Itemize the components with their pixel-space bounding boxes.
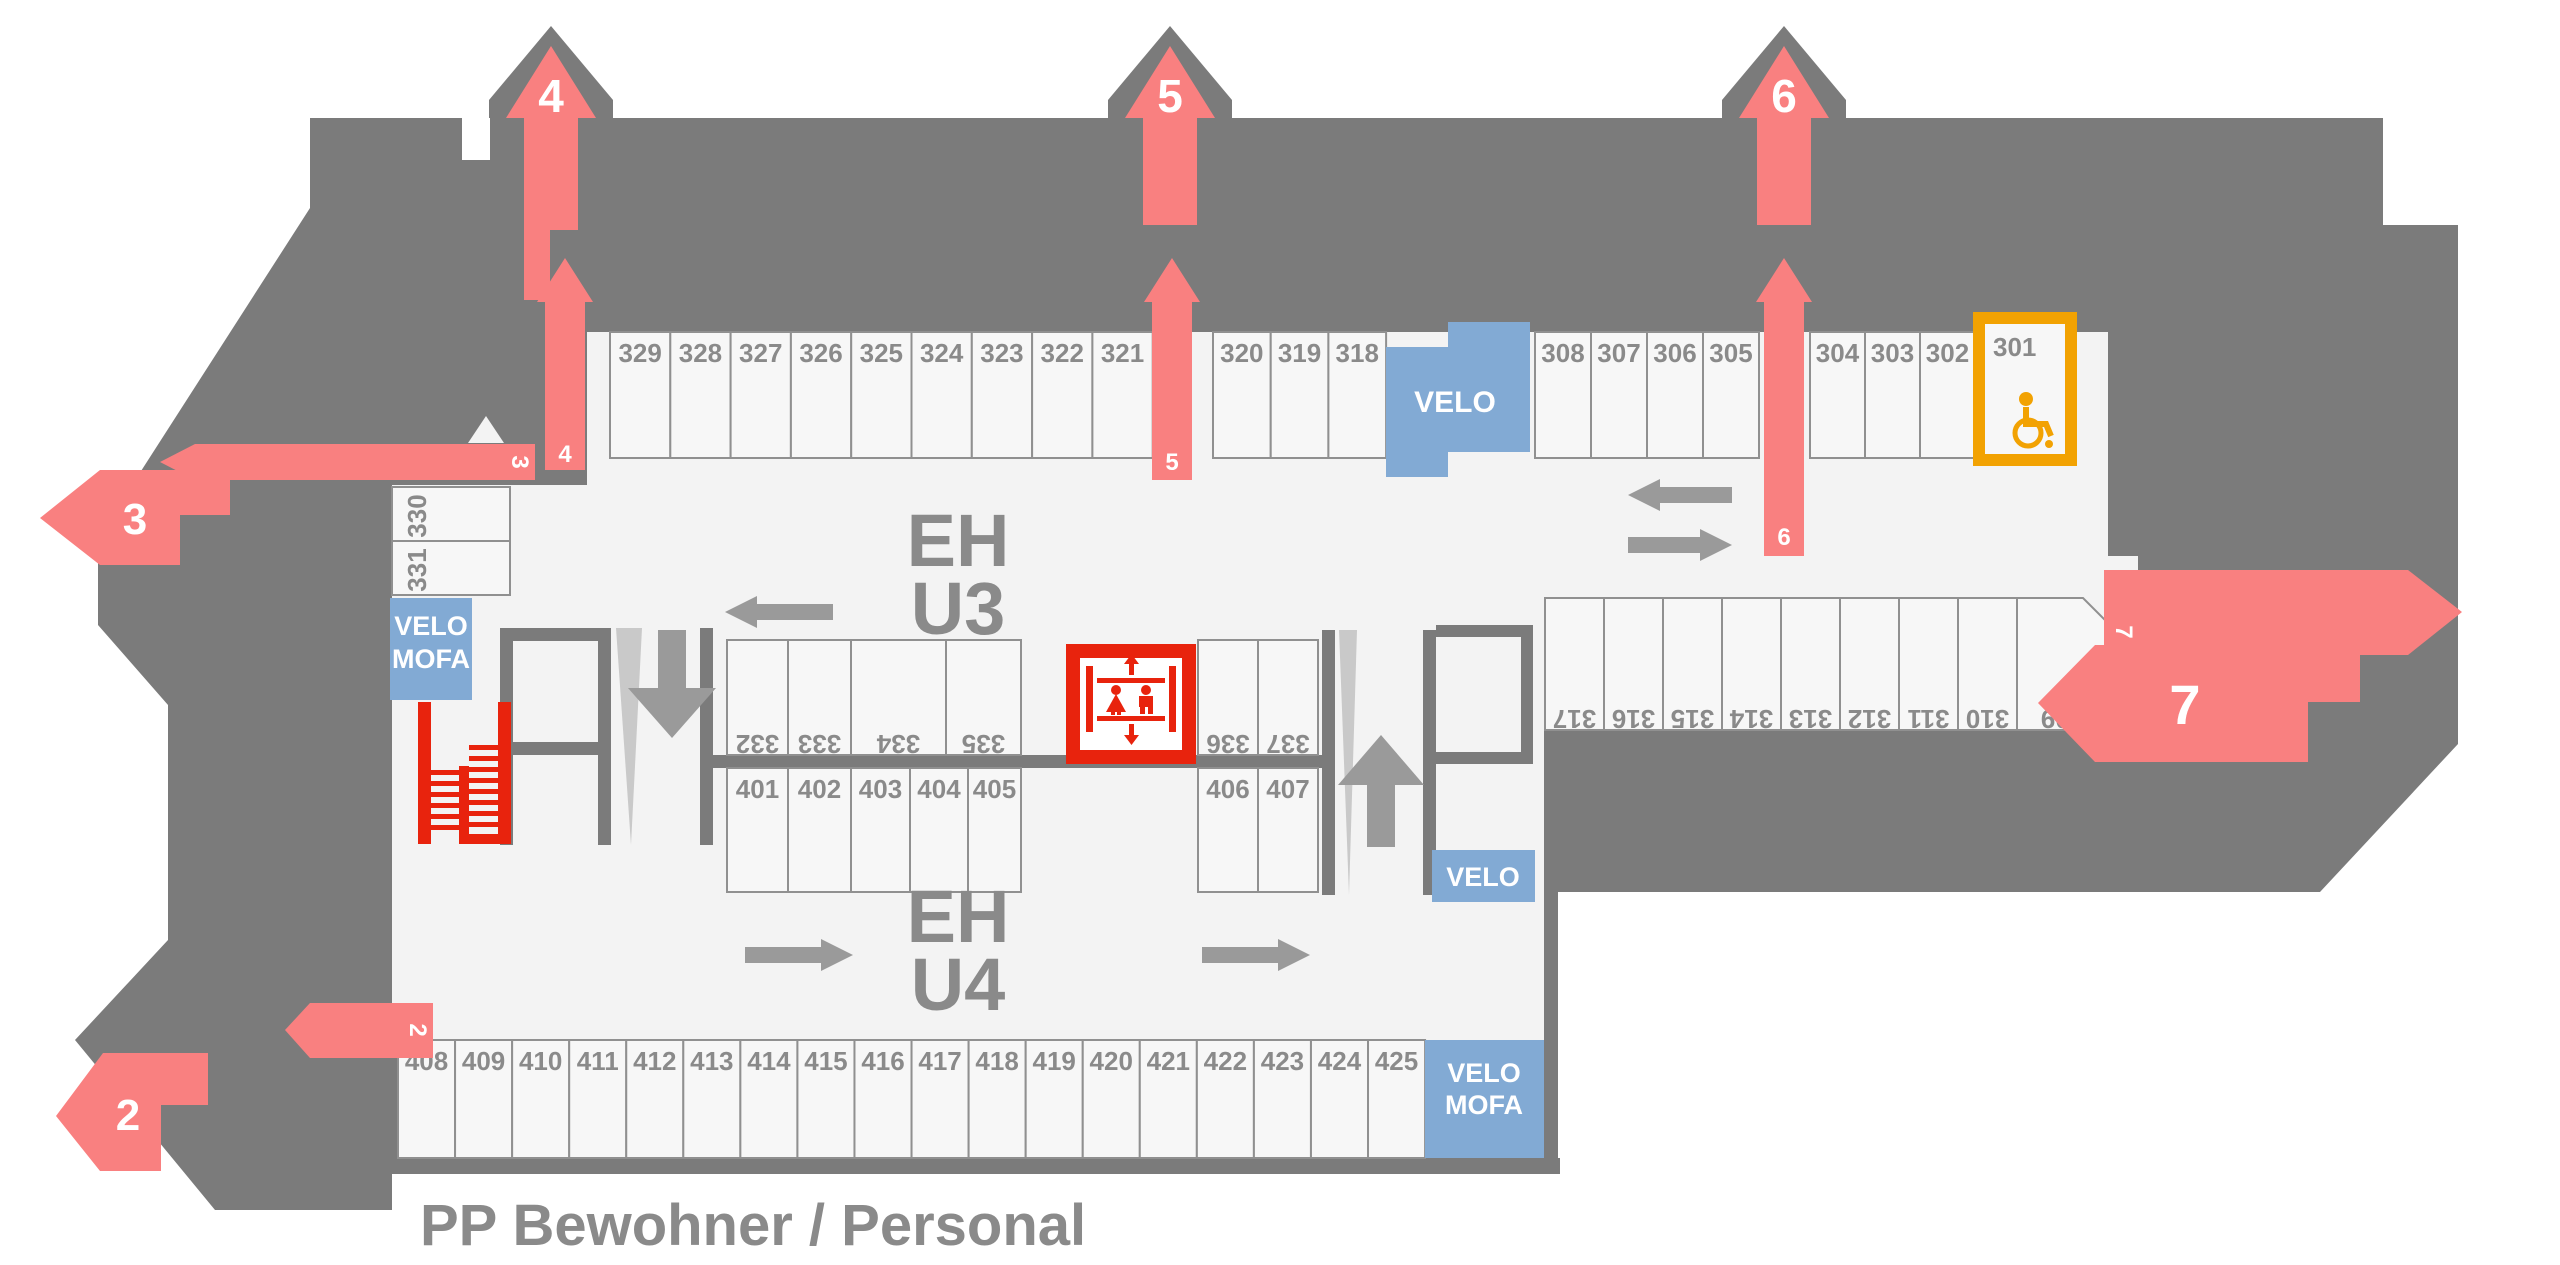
velo-mofa-left-line2: MOFA <box>392 644 470 674</box>
entrance-6-label: 6 <box>1771 70 1797 122</box>
parking-spot-412: 412 <box>626 1040 683 1158</box>
parking-spot-411: 411 <box>569 1040 626 1158</box>
parking-spot-330: 330 <box>392 487 510 541</box>
parking-spot-321: 321 <box>1092 332 1152 458</box>
entrance-5-label: 5 <box>1157 70 1183 122</box>
parking-spot-label: 325 <box>860 338 903 368</box>
parking-spot-label: 415 <box>804 1046 847 1076</box>
parking-spot-406: 406 <box>1198 768 1258 892</box>
parking-spot-label: 425 <box>1375 1046 1418 1076</box>
parking-spot-label: 405 <box>973 774 1016 804</box>
parking-spot-label: 311 <box>1908 704 1950 734</box>
parking-spot-418: 418 <box>969 1040 1026 1158</box>
entrance-2-big-label: 2 <box>116 1091 140 1140</box>
velo-mofa-bottom-line1: VELO <box>1447 1058 1521 1088</box>
elevator-icon <box>1073 651 1189 757</box>
parking-spot-307: 307 <box>1591 332 1647 458</box>
parking-spot-329: 329 <box>610 332 670 458</box>
parking-spot-318: 318 <box>1328 332 1386 458</box>
parking-spot-label: 312 <box>1848 704 1891 734</box>
parking-spot-label: 334 <box>876 729 920 759</box>
parking-spot-label: 318 <box>1336 338 1379 368</box>
parking-spot-label: 403 <box>859 774 902 804</box>
entrance-3-big-label: 3 <box>123 495 147 544</box>
velo-mofa-left-line1: VELO <box>394 611 468 641</box>
parking-spot-414: 414 <box>740 1040 797 1158</box>
parking-spot-401: 401 <box>727 768 788 892</box>
parking-spot-label: 401 <box>736 774 779 804</box>
page-title: PP Bewohner / Personal <box>420 1193 1086 1258</box>
entrance-7-big-label: 7 <box>2169 673 2200 736</box>
parking-spot-label: 412 <box>633 1046 676 1076</box>
entrance-3-small-label: 3 <box>506 455 533 468</box>
parking-spot-327: 327 <box>731 332 791 458</box>
parking-spot-label: 307 <box>1597 338 1640 368</box>
parking-spot-413: 413 <box>683 1040 740 1158</box>
parking-spot-424: 424 <box>1311 1040 1368 1158</box>
parking-spot-label: 328 <box>679 338 722 368</box>
entrance-5-inner-arrow: 5 <box>1144 258 1200 480</box>
parking-spot-423: 423 <box>1254 1040 1311 1158</box>
parking-spot-label: 306 <box>1653 338 1696 368</box>
parking-spot-label: 413 <box>690 1046 733 1076</box>
entrance-5-inner-label: 5 <box>1165 449 1178 476</box>
parking-spot-409: 409 <box>455 1040 512 1158</box>
entrance-2-small-arrow: 2 <box>285 1003 433 1058</box>
parking-spot-306: 306 <box>1647 332 1703 458</box>
parking-spot-302: 302 <box>1920 332 1975 458</box>
parking-spot-label: 308 <box>1541 338 1584 368</box>
parking-spot-label: 303 <box>1871 338 1914 368</box>
entrance-7-small-label: 7 <box>2110 625 2137 638</box>
entrance-4-inner-arrow: 4 <box>537 258 593 470</box>
parking-spot-334: 334 <box>851 640 946 759</box>
velo-top-label: VELO <box>1414 386 1496 419</box>
parking-spot-label: 330 <box>402 494 432 537</box>
parking-spot-315: 315 <box>1663 598 1722 734</box>
parking-spot-425: 425 <box>1368 1040 1425 1158</box>
parking-spot-310: 310 <box>1958 598 2017 734</box>
parking-spot-label: 416 <box>861 1046 904 1076</box>
parking-spot-label: 320 <box>1220 338 1263 368</box>
velo-small-label: VELO <box>1446 862 1520 892</box>
parking-spot-label: 329 <box>618 338 661 368</box>
parking-spot-415: 415 <box>797 1040 854 1158</box>
parking-spot-311: 311 <box>1899 598 1958 734</box>
parking-spot-422: 422 <box>1197 1040 1254 1158</box>
parking-spot-label: 420 <box>1090 1046 1133 1076</box>
parking-spot-label: 327 <box>739 338 782 368</box>
parking-spot-label: 321 <box>1101 338 1144 368</box>
parking-spot-label: 319 <box>1278 338 1321 368</box>
parking-spot-label: 331 <box>402 548 432 591</box>
upper-level-line2: U3 <box>911 567 1006 650</box>
parking-spot-label: 418 <box>975 1046 1018 1076</box>
parking-spot-label: 315 <box>1671 704 1714 734</box>
parking-spot-337: 337 <box>1258 640 1318 759</box>
floor-plan: 3293283273263253243233223213203193183083… <box>0 0 2560 1265</box>
parking-spot-label: 317 <box>1553 704 1596 734</box>
parking-spot-332: 332 <box>727 640 788 759</box>
parking-spot-label: 423 <box>1261 1046 1304 1076</box>
parking-spot-316: 316 <box>1604 598 1663 734</box>
parking-spot-417: 417 <box>912 1040 969 1158</box>
parking-spot-313: 313 <box>1781 598 1840 734</box>
entrance-7-small-arrow: 7 <box>2104 570 2462 655</box>
spot-301-label: 301 <box>1993 332 2036 362</box>
parking-spot-label: 402 <box>798 774 841 804</box>
lower-level-line2: U4 <box>911 943 1006 1026</box>
parking-spot-305: 305 <box>1703 332 1759 458</box>
parking-spot-label: 409 <box>462 1046 505 1076</box>
parking-spot-label: 310 <box>1966 704 2009 734</box>
parking-spot-label: 422 <box>1204 1046 1247 1076</box>
wall-notch <box>462 118 490 160</box>
parking-spot-label: 332 <box>736 729 779 759</box>
parking-spot-308: 308 <box>1535 332 1591 458</box>
parking-spot-416: 416 <box>854 1040 911 1158</box>
entrance-2-small-label: 2 <box>404 1023 431 1036</box>
parking-spot-label: 337 <box>1266 729 1309 759</box>
parking-spot-label: 302 <box>1926 338 1969 368</box>
entrance-6-inner-arrow: 6 <box>1756 258 1812 556</box>
parking-spot-label: 323 <box>980 338 1023 368</box>
parking-spot-402: 402 <box>788 768 851 892</box>
parking-spot-326: 326 <box>791 332 851 458</box>
parking-spot-label: 324 <box>920 338 964 368</box>
parking-spot-label: 316 <box>1612 704 1655 734</box>
parking-spot-label: 421 <box>1147 1046 1190 1076</box>
parking-spot-317: 317 <box>1545 598 1604 734</box>
parking-spot-label: 407 <box>1266 774 1309 804</box>
parking-spot-label: 313 <box>1789 704 1832 734</box>
parking-spot-322: 322 <box>1032 332 1092 458</box>
parking-spot-331: 331 <box>392 541 510 595</box>
parking-spot-label: 335 <box>962 729 1005 759</box>
parking-spot-420: 420 <box>1083 1040 1140 1158</box>
parking-spot-label: 314 <box>1729 704 1773 734</box>
parking-spot-label: 333 <box>798 729 841 759</box>
parking-spot-label: 404 <box>917 774 961 804</box>
parking-spot-label: 304 <box>1816 338 1860 368</box>
entrance-4-label: 4 <box>538 70 564 122</box>
entrance-6-inner-label: 6 <box>1777 524 1790 551</box>
parking-spot-label: 414 <box>747 1046 791 1076</box>
parking-spot-label: 406 <box>1206 774 1249 804</box>
parking-spot-label: 419 <box>1032 1046 1075 1076</box>
parking-spot-label: 417 <box>918 1046 961 1076</box>
parking-spot-323: 323 <box>972 332 1032 458</box>
parking-spot-325: 325 <box>851 332 911 458</box>
parking-spot-335: 335 <box>946 640 1021 759</box>
parking-spot-label: 326 <box>799 338 842 368</box>
parking-spot-314: 314 <box>1722 598 1781 734</box>
parking-spot-333: 333 <box>788 640 851 759</box>
parking-spot-label: 411 <box>577 1046 619 1076</box>
parking-spot-label: 424 <box>1318 1046 1362 1076</box>
entrance-4-inner-label: 4 <box>558 441 572 468</box>
parking-spot-label: 322 <box>1041 338 1084 368</box>
velo-mofa-bottom-line2: MOFA <box>1445 1090 1523 1120</box>
parking-spot-324: 324 <box>912 332 972 458</box>
parking-spot-303: 303 <box>1865 332 1920 458</box>
parking-spot-419: 419 <box>1026 1040 1083 1158</box>
parking-spot-403: 403 <box>851 768 910 892</box>
parking-spot-304: 304 <box>1810 332 1865 458</box>
parking-spot-407: 407 <box>1258 768 1318 892</box>
parking-spot-label: 336 <box>1206 729 1249 759</box>
parking-spot-312: 312 <box>1840 598 1899 734</box>
parking-spot-label: 410 <box>519 1046 562 1076</box>
parking-spot-404: 404 <box>910 768 968 892</box>
parking-spot-405: 405 <box>968 768 1021 892</box>
parking-spot-320: 320 <box>1213 332 1271 458</box>
parking-spot-319: 319 <box>1271 332 1329 458</box>
parking-spot-421: 421 <box>1140 1040 1197 1158</box>
parking-spot-label: 305 <box>1709 338 1752 368</box>
parking-spot-328: 328 <box>670 332 730 458</box>
parking-spot-336: 336 <box>1198 640 1258 759</box>
parking-spot-410: 410 <box>512 1040 569 1158</box>
handicap-spot: 301 <box>1979 318 2071 460</box>
